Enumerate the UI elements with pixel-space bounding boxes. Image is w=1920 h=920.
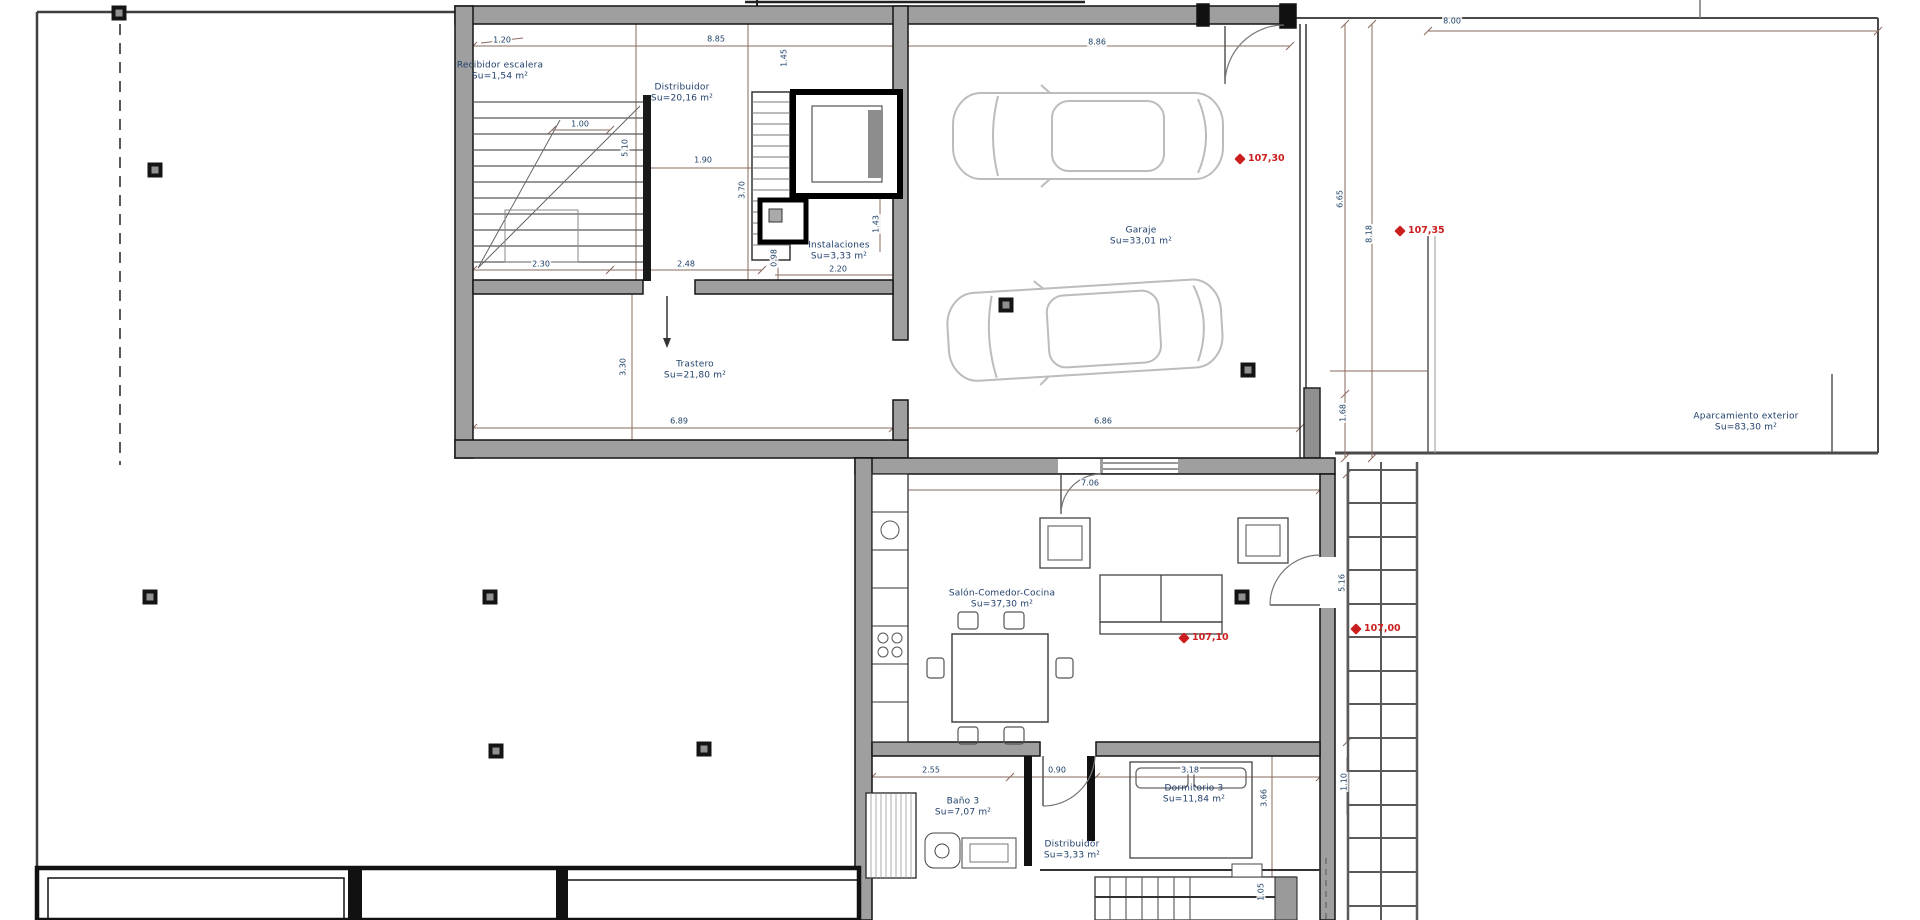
- room-label-aparcamiento-exterior: Aparcamiento exteriorSu=83,30 m²: [1693, 412, 1798, 433]
- upper-block-walls: [455, 4, 1320, 458]
- dim-label: 1.20: [492, 36, 512, 45]
- dim-label: 6.65: [1336, 189, 1345, 209]
- dim-label: 6.89: [669, 417, 689, 426]
- room-label-garaje: GarajeSu=33,01 m²: [1110, 226, 1172, 247]
- room-label-recibidor: Recibidor escaleraSu=1,54 m²: [457, 61, 543, 82]
- dim-label: 1.45: [780, 48, 789, 68]
- room-label-dormitorio3: Dormitorio 3Su=11,84 m²: [1163, 784, 1225, 805]
- elevator-shaft: [752, 92, 900, 260]
- dim-label: 0.98: [770, 248, 779, 268]
- room-area: Su=21,80 m²: [664, 370, 726, 381]
- dim-label: 2.48: [676, 260, 696, 269]
- room-name: Distribuidor: [1044, 840, 1100, 851]
- dim-label: 1.05: [1257, 882, 1266, 902]
- room-name: Aparcamiento exterior: [1693, 412, 1798, 423]
- dim-label: 5.16: [1338, 573, 1347, 593]
- exterior-parking-boundary: [1294, 0, 1878, 453]
- room-name: Recibidor escalera: [457, 61, 543, 72]
- level-diamond-icon: [1350, 623, 1361, 634]
- level-diamond-icon: [1234, 153, 1245, 164]
- car-bottom: [945, 270, 1225, 391]
- dim-label: 8.00: [1442, 17, 1462, 26]
- room-area: Su=1,54 m²: [457, 71, 543, 82]
- dim-label: 3.30: [619, 357, 628, 377]
- dim-label: 1.10: [1340, 772, 1349, 792]
- room-area: Su=33,01 m²: [1110, 236, 1172, 247]
- level-marker: 107,35: [1396, 225, 1445, 236]
- room-label-distribuidor-bajo: DistribuidorSu=3,33 m²: [1044, 840, 1100, 861]
- dim-label: 1.43: [872, 214, 881, 234]
- kitchen-counter: [872, 474, 908, 742]
- level-value: 107,10: [1192, 632, 1229, 643]
- room-name: Trastero: [664, 360, 726, 371]
- level-value: 107,30: [1248, 153, 1285, 164]
- room-label-trastero: TrasteroSu=21,80 m²: [664, 360, 726, 381]
- level-marker: 107,00: [1352, 623, 1401, 634]
- room-area: Su=83,30 m²: [1693, 422, 1798, 433]
- level-value: 107,00: [1364, 623, 1401, 634]
- sofa-set: [1040, 518, 1288, 634]
- room-name: Dormitorio 3: [1163, 784, 1225, 795]
- room-area: Su=3,33 m²: [808, 251, 870, 262]
- dim-label: 0.90: [1047, 766, 1067, 775]
- retaining-wall-structure: [37, 866, 859, 920]
- dim-label: 2.20: [828, 265, 848, 274]
- room-name: Salón-Comedor-Cocina: [949, 589, 1055, 600]
- structural-columns: [112, 6, 1256, 759]
- room-area: Su=11,84 m²: [1163, 794, 1225, 805]
- room-label-instalaciones: InstalacionesSu=3,33 m²: [808, 241, 870, 262]
- room-area: Su=37,30 m²: [949, 599, 1055, 610]
- dim-label: 8.86: [1087, 38, 1107, 47]
- staircase-main: [473, 95, 651, 281]
- dim-label: 1.90: [693, 156, 713, 165]
- dim-label: 1.00: [570, 120, 590, 129]
- room-area: Su=20,16 m²: [651, 93, 713, 104]
- dining-table: [927, 612, 1073, 744]
- car-top: [953, 85, 1223, 187]
- garage-cars: [945, 85, 1225, 390]
- level-diamond-icon: [1394, 225, 1405, 236]
- parking-strip: [1348, 462, 1417, 920]
- dim-label: 3.66: [1260, 788, 1269, 808]
- lower-staircase: [1095, 858, 1326, 920]
- dim-label: 5.10: [621, 138, 630, 158]
- dim-label: 8.18: [1365, 224, 1374, 244]
- room-label-salon: Salón-Comedor-CocinaSu=37,30 m²: [949, 589, 1055, 610]
- dim-label: 7.06: [1080, 479, 1100, 488]
- dim-label: 8.85: [706, 35, 726, 44]
- dim-label: 6.86: [1093, 417, 1113, 426]
- room-area: Su=3,33 m²: [1044, 850, 1100, 861]
- room-name: Distribuidor: [651, 83, 713, 94]
- dim-label: 1.68: [1339, 403, 1348, 423]
- bed: [1130, 762, 1252, 858]
- room-label-distribuidor-garaje: DistribuidorSu=20,16 m²: [651, 83, 713, 104]
- dim-label: 2.55: [921, 766, 941, 775]
- floor-plan-canvas: Recibidor escaleraSu=1,54 m² Distribuido…: [0, 0, 1920, 920]
- dim-label: 3.70: [738, 180, 747, 200]
- room-name: Baño 3: [935, 797, 991, 808]
- room-name: Garaje: [1110, 226, 1172, 237]
- room-name: Instalaciones: [808, 241, 870, 252]
- level-marker: 107,30: [1236, 153, 1285, 164]
- room-label-bano3: Baño 3Su=7,07 m²: [935, 797, 991, 818]
- floorplan-linework: [0, 0, 1920, 920]
- dim-label: 3.18: [1180, 766, 1200, 775]
- dim-label: 2.30: [531, 260, 551, 269]
- level-marker: 107,10: [1180, 632, 1229, 643]
- level-value: 107,35: [1408, 225, 1445, 236]
- room-area: Su=7,07 m²: [935, 807, 991, 818]
- level-diamond-icon: [1178, 632, 1189, 643]
